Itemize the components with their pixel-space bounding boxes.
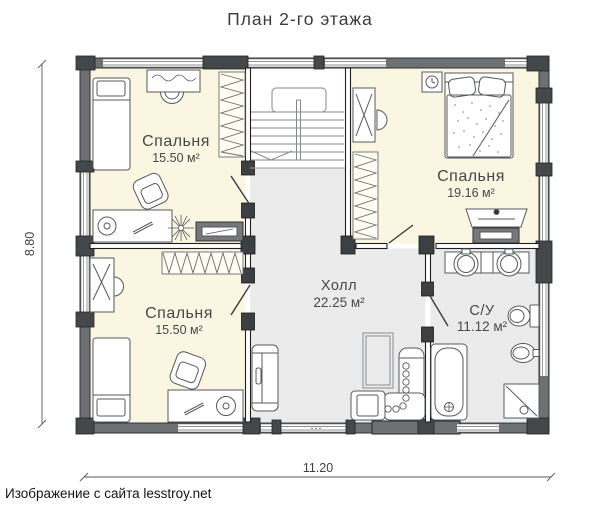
floor-plan-drawing: Спальня 15.50 м² Спальня 19.16 м² Спальн… — [0, 0, 600, 510]
window-bottom-3 — [457, 424, 499, 431]
floor-plan-page: План 2-го этажа — [0, 0, 600, 510]
dresser — [466, 209, 527, 243]
window-right-1 — [540, 103, 547, 164]
wardrobe-icon — [219, 72, 245, 157]
dimension-height: 8.80 — [23, 60, 46, 428]
nightstand-clock — [422, 72, 442, 92]
room-label: С/У — [469, 303, 495, 319]
floor-staircase-bay — [250, 68, 345, 168]
shower — [504, 384, 539, 418]
bed — [93, 338, 130, 422]
tv-stand — [196, 222, 243, 241]
wardrobe-icon — [353, 152, 378, 239]
room-area-label: 22.25 м² — [313, 295, 365, 310]
room-label: Спальня — [142, 133, 210, 150]
sofa — [252, 345, 278, 411]
wardrobe-icon — [162, 252, 243, 274]
dimension-height-label: 8.80 — [23, 232, 37, 256]
room-area-label: 19.16 м² — [447, 186, 495, 200]
dimension-width-label: 11.20 — [303, 461, 333, 475]
writing-desk — [168, 390, 243, 422]
window-top-1 — [103, 59, 205, 66]
dimension-width: 11.20 — [80, 461, 555, 481]
room-label: Спальня — [145, 305, 213, 322]
double-bed — [445, 73, 513, 158]
credit-text: Изображение с сайта lesstroy.net — [5, 486, 211, 501]
writing-desk — [93, 210, 172, 242]
room-label: Спальня — [437, 168, 505, 185]
toilet — [508, 305, 539, 327]
vanity-table — [90, 258, 114, 312]
room-area-label: 15.50 м² — [152, 151, 200, 165]
room-area-label: 15.50 м² — [155, 323, 203, 337]
room-label: Холл — [321, 278, 357, 294]
bed — [93, 78, 130, 170]
window-bottom-1 — [178, 424, 246, 431]
sink-counter — [445, 249, 529, 276]
window-top-2 — [247, 59, 317, 66]
bathtub — [431, 344, 467, 420]
window-left-2 — [81, 256, 88, 315]
window-left-1 — [81, 170, 88, 238]
desk — [147, 70, 200, 92]
window-right-2 — [540, 176, 547, 242]
window-right-3 — [540, 283, 547, 376]
window-top-3 — [325, 59, 386, 66]
dressing-table — [353, 88, 375, 142]
window-top-4 — [505, 59, 530, 66]
room-area-label: 11.12 м² — [457, 319, 508, 334]
